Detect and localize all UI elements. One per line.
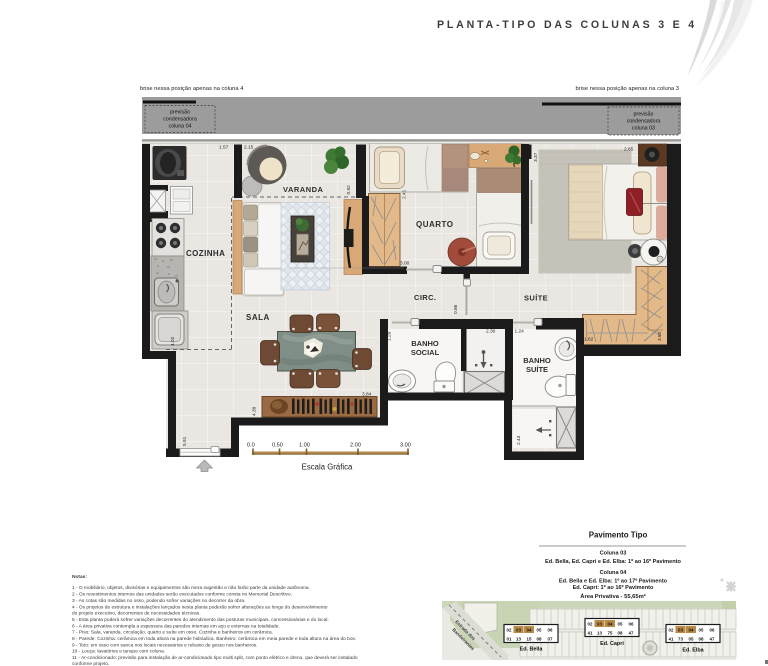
svg-text:0.92: 0.92 (346, 185, 352, 195)
svg-text:1.00: 1.00 (299, 443, 310, 449)
svg-text:06: 06 (548, 628, 553, 633)
svg-text:6 - A área privativa contempla: 6 - A área privativa contempla a espessu… (72, 624, 280, 630)
svg-text:05: 05 (689, 637, 694, 642)
svg-text:previsão: previsão (633, 112, 653, 118)
svg-text:03: 03 (516, 628, 521, 633)
svg-text:11 - Ar-condicionado: previsão: 11 - Ar-condicionado: previsão para inst… (72, 655, 358, 661)
svg-text:3.00: 3.00 (400, 443, 411, 449)
svg-text:15: 15 (527, 637, 532, 642)
svg-text:05: 05 (537, 628, 542, 633)
svg-text:2.15: 2.15 (244, 145, 254, 151)
svg-text:41: 41 (669, 637, 674, 642)
svg-text:PLANTA-TIPO DAS COLUNAS 3 E 4: PLANTA-TIPO DAS COLUNAS 3 E 4 (437, 19, 697, 31)
svg-text:2.30: 2.30 (486, 329, 496, 335)
svg-text:13: 13 (516, 637, 521, 642)
svg-text:Ed. Capri: 1º ao 16º Pavimento: Ed. Capri: 1º ao 16º Pavimento (573, 585, 654, 591)
svg-text:41: 41 (588, 631, 593, 636)
svg-text:08: 08 (537, 637, 542, 642)
svg-text:7 - Piso: Sala, varanda, circu: 7 - Piso: Sala, varanda, circulação, qua… (72, 630, 273, 636)
svg-text:05: 05 (699, 628, 704, 633)
svg-text:9 - Teto: em osso com sanca no: 9 - Teto: em osso com sanca nos locais n… (72, 643, 258, 649)
svg-text:Ed. Bella, Ed. Capri e Ed. Elb: Ed. Bella, Ed. Capri e Ed. Elba: 1º ao 1… (545, 559, 681, 565)
svg-text:Coluna 04: Coluna 04 (600, 570, 628, 576)
svg-text:do projeto executivo, decorren: do projeto executivo, decorrentes de nec… (72, 611, 201, 617)
svg-text:07: 07 (548, 637, 553, 642)
svg-text:Ed. Capri: Ed. Capri (600, 641, 624, 647)
svg-text:03: 03 (597, 622, 602, 627)
svg-text:5 - Esta planta poderá sofrer: 5 - Esta planta poderá sofrer variações … (72, 617, 329, 623)
svg-text:2.00: 2.00 (350, 443, 361, 449)
svg-text:08: 08 (699, 637, 704, 642)
svg-text:brise nessa posição apenas na: brise nessa posição apenas na coluna 4 (140, 86, 244, 92)
svg-text:3.50: 3.50 (657, 331, 663, 341)
svg-text:4.39: 4.39 (252, 406, 258, 416)
svg-text:SUÍTE: SUÍTE (524, 294, 548, 303)
svg-text:0.0: 0.0 (247, 443, 255, 449)
svg-text:08: 08 (618, 631, 623, 636)
svg-text:3 - As cotas são medidas no os: 3 - As cotas são medidas no osso, podend… (72, 598, 245, 604)
svg-text:0.86: 0.86 (453, 304, 459, 314)
svg-text:05: 05 (618, 622, 623, 627)
svg-text:previsão: previsão (170, 110, 190, 116)
svg-text:BANHO: BANHO (523, 356, 551, 365)
svg-text:2.41: 2.41 (402, 189, 408, 199)
svg-text:75: 75 (608, 631, 613, 636)
svg-text:04: 04 (689, 628, 694, 633)
svg-text:3.37: 3.37 (533, 152, 539, 162)
svg-text:COZINHA: COZINHA (186, 249, 225, 258)
svg-text:Pavimento Tipo: Pavimento Tipo (589, 531, 648, 540)
svg-text:3.00: 3.00 (400, 261, 410, 267)
svg-text:SUÍTE: SUÍTE (526, 365, 548, 374)
svg-text:SOCIAL: SOCIAL (411, 348, 440, 357)
svg-text:03: 03 (678, 628, 683, 633)
svg-text:04: 04 (527, 628, 532, 633)
svg-text:1 - O mobiliário, objetos, div: 1 - O mobiliário, objetos, divisórias e … (72, 585, 310, 591)
svg-text:Coluna 03: Coluna 03 (600, 551, 627, 557)
svg-text:0.50: 0.50 (272, 443, 283, 449)
svg-text:coluna 03: coluna 03 (632, 126, 655, 132)
svg-text:13: 13 (597, 631, 602, 636)
svg-text:73: 73 (678, 637, 683, 642)
svg-text:VARANDA: VARANDA (283, 185, 324, 194)
svg-text:01: 01 (507, 637, 512, 642)
svg-text:1.62: 1.62 (584, 337, 594, 343)
svg-text:47: 47 (710, 637, 715, 642)
svg-text:4.02: 4.02 (170, 336, 176, 346)
svg-text:1.57: 1.57 (219, 145, 229, 151)
svg-text:condensadora: condensadora (163, 117, 197, 123)
svg-text:47: 47 (629, 631, 634, 636)
svg-text:4 - Os projetos de estrutura e: 4 - Os projetos de estrutura e instalaçõ… (72, 605, 328, 611)
svg-text:06: 06 (629, 622, 634, 627)
svg-text:Ed. Bella e Ed. Elba: 1º ao 17: Ed. Bella e Ed. Elba: 1º ao 17º Paviment… (559, 579, 668, 585)
svg-text:brise nessa posição apenas na: brise nessa posição apenas na coluna 3 (576, 86, 679, 92)
svg-text:condensadora: condensadora (627, 119, 661, 125)
svg-text:02: 02 (507, 628, 512, 633)
svg-text:2 - Os revestimentos internos: 2 - Os revestimentos internos das unidad… (72, 592, 292, 598)
svg-text:coluna 04: coluna 04 (169, 124, 192, 130)
svg-text:02: 02 (588, 622, 593, 627)
svg-text:CIRC.: CIRC. (414, 293, 436, 302)
svg-text:1.24: 1.24 (515, 329, 525, 335)
svg-text:1.29: 1.29 (387, 331, 393, 341)
svg-text:3.84: 3.84 (362, 392, 372, 398)
svg-text:Escala Gráfica: Escala Gráfica (302, 463, 353, 472)
svg-text:2.65: 2.65 (624, 147, 634, 153)
svg-text:02: 02 (669, 628, 674, 633)
svg-text:Notas:: Notas: (72, 574, 87, 580)
svg-text:2.43: 2.43 (516, 435, 522, 445)
svg-text:QUARTO: QUARTO (416, 220, 454, 229)
svg-text:5.91: 5.91 (182, 436, 188, 446)
svg-text:SALA: SALA (246, 313, 270, 322)
svg-text:Ed. Bella: Ed. Bella (520, 647, 544, 653)
svg-text:Área Privativa - 55,65m²: Área Privativa - 55,65m² (580, 593, 645, 600)
svg-text:Ed. Elba: Ed. Elba (682, 648, 704, 654)
svg-text:BANHO: BANHO (411, 339, 439, 348)
svg-text:10 - Louça: lavatórios e tanqu: 10 - Louça: lavatórios e tanque com colu… (72, 649, 165, 655)
svg-text:06: 06 (710, 628, 715, 633)
svg-text:conforme projeto.: conforme projeto. (72, 661, 109, 666)
svg-text:8 - Parede: Cozinha: cerâmica: 8 - Parede: Cozinha: cerâmica em toda al… (72, 636, 356, 642)
svg-text:04: 04 (608, 622, 613, 627)
